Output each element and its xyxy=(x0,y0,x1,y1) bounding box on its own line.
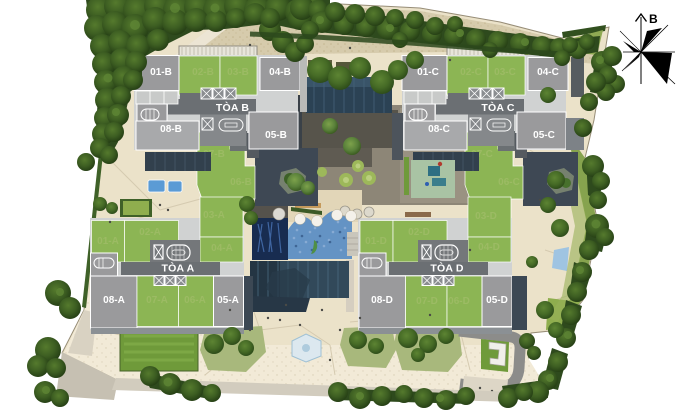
svg-text:08-D: 08-D xyxy=(371,295,393,306)
svg-text:06-C: 06-C xyxy=(498,177,520,188)
svg-text:02-A: 02-A xyxy=(139,227,161,238)
svg-text:02-B: 02-B xyxy=(192,67,214,78)
svg-text:01-D: 01-D xyxy=(365,236,387,247)
svg-text:01-B: 01-B xyxy=(150,67,172,78)
svg-text:08-C: 08-C xyxy=(428,124,450,135)
svg-text:06-A: 06-A xyxy=(184,295,206,306)
svg-text:02-D: 02-D xyxy=(408,227,430,238)
svg-text:01-C: 01-C xyxy=(417,67,439,78)
svg-text:05-B: 05-B xyxy=(265,130,287,141)
svg-text:06-B: 06-B xyxy=(230,177,252,188)
svg-text:05-D: 05-D xyxy=(486,295,508,306)
svg-text:08-B: 08-B xyxy=(160,124,182,135)
svg-text:04-A: 04-A xyxy=(211,243,233,254)
svg-text:TÒA A: TÒA A xyxy=(162,262,195,275)
svg-text:TÒA D: TÒA D xyxy=(430,262,463,275)
svg-text:08-A: 08-A xyxy=(103,295,125,306)
svg-text:TÒA C: TÒA C xyxy=(481,101,514,114)
svg-text:05-C: 05-C xyxy=(533,130,555,141)
svg-text:06-D: 06-D xyxy=(448,296,470,307)
svg-text:TÒA B: TÒA B xyxy=(216,101,249,114)
svg-text:01-A: 01-A xyxy=(97,236,119,247)
svg-text:03-D: 03-D xyxy=(475,211,497,222)
svg-text:02-C: 02-C xyxy=(460,67,482,78)
svg-text:B: B xyxy=(649,12,658,26)
svg-text:05-A: 05-A xyxy=(217,295,239,306)
svg-text:04-B: 04-B xyxy=(269,67,291,78)
svg-text:04-D: 04-D xyxy=(478,242,500,253)
svg-text:03-B: 03-B xyxy=(227,67,249,78)
svg-text:03-C: 03-C xyxy=(494,67,516,78)
svg-text:03-A: 03-A xyxy=(203,210,225,221)
svg-text:07-D: 07-D xyxy=(416,296,438,307)
svg-text:07-A: 07-A xyxy=(146,295,168,306)
svg-text:04-C: 04-C xyxy=(537,67,559,78)
